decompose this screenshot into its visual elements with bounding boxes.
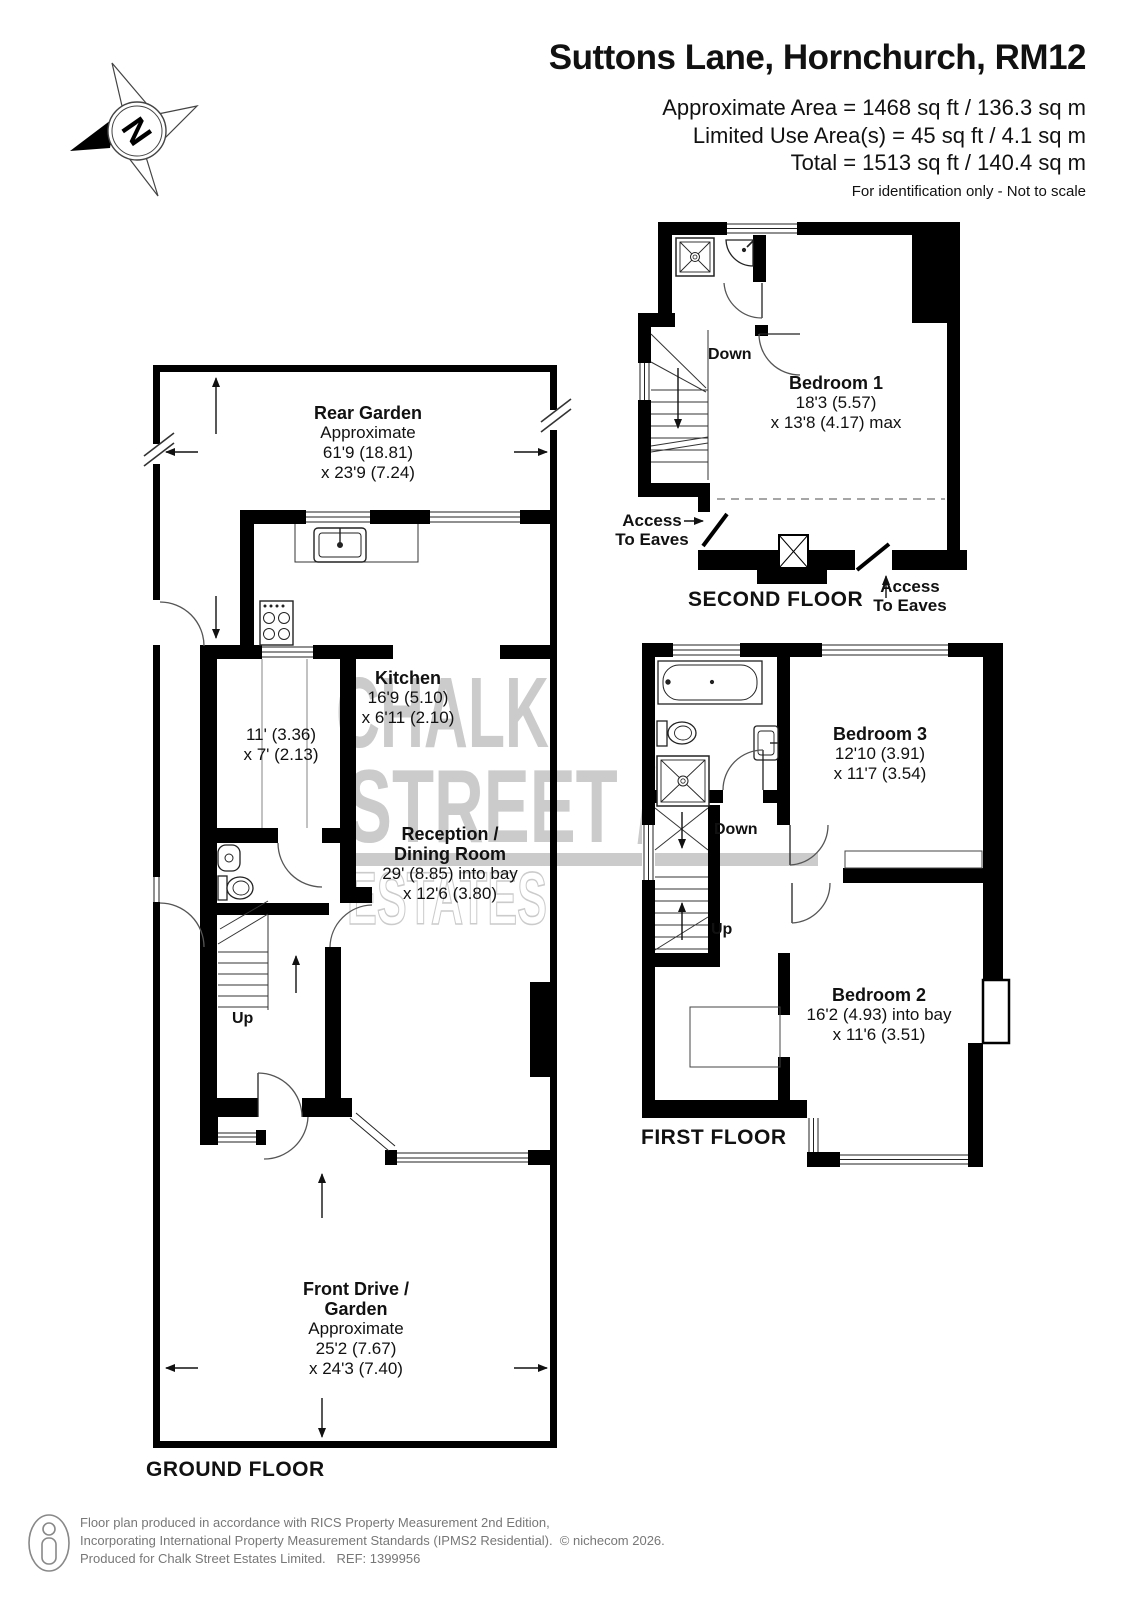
eaves-line: Access <box>873 577 946 596</box>
room-dim: x 11'6 (3.51) <box>806 1025 951 1045</box>
first-floor-windows <box>642 643 968 1167</box>
basin-icon-first <box>754 726 778 760</box>
stove-icon <box>260 601 293 645</box>
wc-basin-icon <box>218 845 240 871</box>
room-name: Bedroom 1 <box>771 373 902 393</box>
stairs-up-label-first: Up <box>711 921 732 939</box>
room-name: Reception / <box>382 824 518 844</box>
room-label-bedroom1: Bedroom 1 18'3 (5.57) x 13'8 (4.17) max <box>771 373 902 433</box>
eaves-line: To Eaves <box>873 596 946 615</box>
stairs-down-label-second: Down <box>708 346 752 364</box>
compass-rose: N <box>58 48 218 208</box>
room-dim: x 12'6 (3.80) <box>382 884 518 904</box>
kitchen-sink-icon <box>314 528 366 562</box>
fitted-wardrobe-bedroom3 <box>845 851 982 868</box>
total-area: Total = 1513 sq ft / 140.4 sq m <box>549 149 1086 177</box>
fitted-wardrobe-bedroom2 <box>690 1007 780 1067</box>
room-dim: x 6'11 (2.10) <box>362 708 455 728</box>
stairs-up-label-ground: Up <box>232 1010 253 1028</box>
footer-line: Produced for Chalk Street Estates Limite… <box>80 1550 665 1568</box>
toilet-icon-first <box>657 721 696 746</box>
room-label-front-drive: Front Drive / Garden Approximate 25'2 (7… <box>303 1279 409 1379</box>
room-dim: 11' (3.36) <box>243 725 318 745</box>
room-name: Front Drive / <box>303 1279 409 1299</box>
second-floor-title: SECOND FLOOR <box>688 588 863 612</box>
page-title: Suttons Lane, Hornchurch, RM12 <box>549 38 1086 78</box>
floor-plan-svg <box>0 0 1131 1600</box>
footer-line: Floor plan produced in accordance with R… <box>80 1514 665 1532</box>
eaves-line: Access <box>615 511 688 530</box>
staircase-first <box>655 808 708 950</box>
corner-basin-icon <box>726 240 753 266</box>
room-label-bedroom2: Bedroom 2 16'2 (4.93) into bay x 11'6 (3… <box>806 985 951 1045</box>
room-dim: x 13'8 (4.17) max <box>771 413 902 433</box>
room-dim: 16'2 (4.93) into bay <box>806 1005 951 1025</box>
disclaimer: For identification only - Not to scale <box>549 183 1086 200</box>
room-name: Kitchen <box>362 668 455 688</box>
floorplan-page: CHALK STREET / ESTATES <box>0 0 1131 1600</box>
staircase-ground <box>218 901 296 1010</box>
room-label-kitchen: Kitchen 16'9 (5.10) x 6'11 (2.10) <box>362 668 455 728</box>
room-name: Bedroom 2 <box>806 985 951 1005</box>
room-dim: Approximate <box>314 423 422 443</box>
room-name: Rear Garden <box>314 403 422 423</box>
chimney-breast-first <box>983 980 1009 1043</box>
room-dim: x 7' (2.13) <box>243 745 318 765</box>
room-dim: 12'10 (3.91) <box>833 744 927 764</box>
room-label-bedroom3: Bedroom 3 12'10 (3.91) x 11'7 (3.54) <box>833 724 927 784</box>
room-dim: 25'2 (7.67) <box>303 1339 409 1359</box>
room-dim: 61'9 (18.81) <box>314 443 422 463</box>
room-dim: 29' (8.85) into bay <box>382 864 518 884</box>
room-dim: Approximate <box>303 1319 409 1339</box>
access-to-eaves-left: Access To Eaves <box>615 511 688 549</box>
toilet-icon-ground <box>218 876 253 900</box>
staircase-second <box>651 330 708 480</box>
room-name: Garden <box>303 1299 409 1319</box>
room-dim: x 24'3 (7.40) <box>303 1359 409 1379</box>
person-icon <box>26 1512 72 1574</box>
eaves-line: To Eaves <box>615 530 688 549</box>
bathtub-icon <box>658 661 762 704</box>
room-dim: 16'9 (5.10) <box>362 688 455 708</box>
room-label-reception: Reception / Dining Room 29' (8.85) into … <box>382 824 518 904</box>
room-label-store: 11' (3.36) x 7' (2.13) <box>243 725 318 765</box>
room-name: Dining Room <box>382 844 518 864</box>
access-to-eaves-right: Access To Eaves <box>873 577 946 615</box>
room-dim: x 23'9 (7.24) <box>314 463 422 483</box>
header: Suttons Lane, Hornchurch, RM12 Approxima… <box>549 38 1086 200</box>
first-floor-title: FIRST FLOOR <box>641 1126 787 1150</box>
room-label-rear-garden: Rear Garden Approximate 61'9 (18.81) x 2… <box>314 403 422 483</box>
stairs-down-label-first: Down <box>714 821 758 839</box>
shower-tray-icon-second <box>676 238 714 276</box>
chimney-breast-ground <box>530 982 550 1077</box>
approximate-area: Approximate Area = 1468 sq ft / 136.3 sq… <box>549 94 1086 122</box>
shower-tray-icon-first <box>657 756 709 806</box>
footer: Floor plan produced in accordance with R… <box>80 1514 665 1568</box>
room-dim: 18'3 (5.57) <box>771 393 902 413</box>
limited-use-area: Limited Use Area(s) = 45 sq ft / 4.1 sq … <box>549 122 1086 150</box>
room-dim: x 11'7 (3.54) <box>833 764 927 784</box>
first-floor-plan <box>642 643 1009 1167</box>
ground-floor-title: GROUND FLOOR <box>146 1458 325 1482</box>
footer-line: Incorporating International Property Mea… <box>80 1532 665 1550</box>
room-name: Bedroom 3 <box>833 724 927 744</box>
rooflight-icon <box>779 535 808 568</box>
